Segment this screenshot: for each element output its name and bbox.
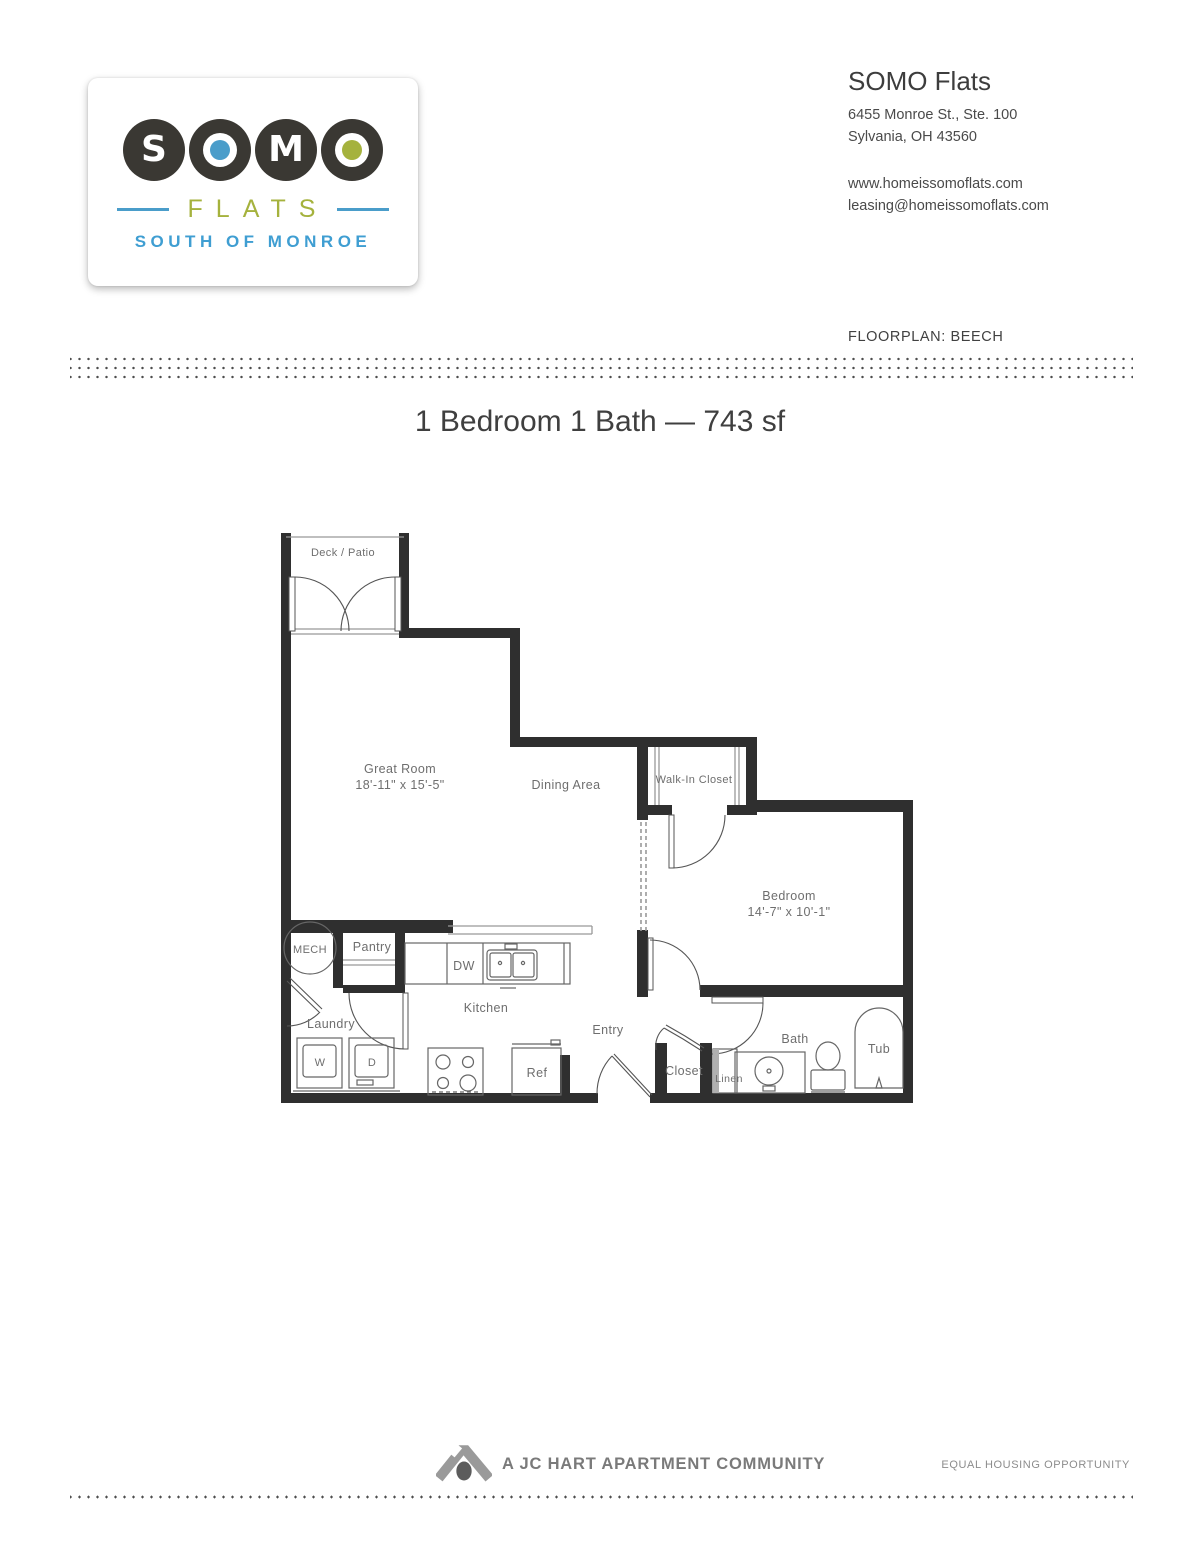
bedroom-dims: 14'-7" x 10'-1": [748, 905, 831, 919]
blue-dot-icon: [210, 140, 230, 160]
company-name: SOMO Flats: [848, 66, 1049, 97]
dryer-label: D: [368, 1057, 376, 1069]
somo-logo-card: S M FLATS SOUTH OF MONROE: [88, 78, 418, 286]
logo-flats-row: FLATS: [117, 195, 390, 224]
flats-dash-right: [337, 208, 389, 211]
bedroom-label: Bedroom: [762, 889, 816, 903]
great-room-label: Great Room: [364, 762, 436, 776]
kitchen-label: Kitchen: [464, 1001, 509, 1015]
green-dot-icon: [342, 140, 362, 160]
email-link[interactable]: leasing@homeissomoflats.com: [848, 195, 1049, 217]
floorplan-name-label: FLOORPLAN: BEECH: [848, 329, 1003, 345]
linen-label: Linen: [715, 1073, 743, 1085]
page-title: 1 Bedroom 1 Bath — 743 sf: [0, 405, 1200, 439]
washer-label: W: [315, 1057, 326, 1069]
logo-letter-o-green: [321, 119, 383, 181]
door-swings: [287, 577, 763, 1097]
logo-flats-word: FLATS: [178, 195, 329, 224]
footer-community-text: A JC HART APARTMENT COMMUNITY: [502, 1455, 825, 1474]
logo-letter-m: M: [255, 119, 317, 181]
walls: [281, 533, 913, 1103]
header-contact-block: SOMO Flats 6455 Monroe St., Ste. 100 Syl…: [848, 66, 1049, 217]
pantry-label: Pantry: [353, 940, 392, 954]
fridge-label: Ref: [527, 1066, 548, 1080]
logo-letter-o-blue: [189, 119, 251, 181]
dishwasher-label: DW: [453, 959, 475, 973]
dotted-separator-top: [70, 354, 1133, 382]
address-line-1: 6455 Monroe St., Ste. 100: [848, 105, 1049, 127]
laundry-label: Laundry: [307, 1017, 355, 1031]
logo-tagline: SOUTH OF MONROE: [135, 232, 372, 252]
address-line-2: Sylvania, OH 43560: [848, 127, 1049, 149]
somo-logo-circles: S M: [123, 119, 383, 181]
floorplan-page: S M FLATS SOUTH OF MONROE SOMO Flats 645…: [0, 0, 1200, 1553]
jchart-house-icon: [436, 1437, 492, 1487]
floorplan-drawing: Deck / Patio Great Room 18'-11" x 15'-5"…: [270, 520, 930, 1120]
logo-ring-inner: [335, 133, 369, 167]
thin-lines: [286, 537, 739, 965]
room-labels: Deck / Patio Great Room 18'-11" x 15'-5"…: [293, 547, 890, 1085]
logo-letter-m-text: M: [268, 129, 304, 170]
walk-in-closet-label: Walk-In Closet: [656, 774, 733, 786]
dotted-separator-bottom: [70, 1492, 1133, 1502]
dining-label: Dining Area: [531, 778, 600, 792]
logo-letter-s: S: [123, 119, 185, 181]
mech-label: MECH: [293, 944, 327, 956]
sliding-door: [641, 822, 646, 932]
deck-label: Deck / Patio: [311, 547, 375, 559]
entry-label: Entry: [592, 1023, 624, 1037]
flats-dash-left: [117, 208, 169, 211]
bath-label: Bath: [781, 1032, 808, 1046]
great-room-dims: 18'-11" x 15'-5": [355, 778, 444, 792]
equal-housing-text: EQUAL HOUSING OPPORTUNITY: [941, 1459, 1130, 1471]
logo-letter-s-text: S: [141, 129, 167, 170]
website-link[interactable]: www.homeissomoflats.com: [848, 173, 1049, 195]
logo-ring-inner: [203, 133, 237, 167]
closet-label: Closet: [665, 1064, 703, 1078]
tub-label: Tub: [868, 1042, 890, 1056]
